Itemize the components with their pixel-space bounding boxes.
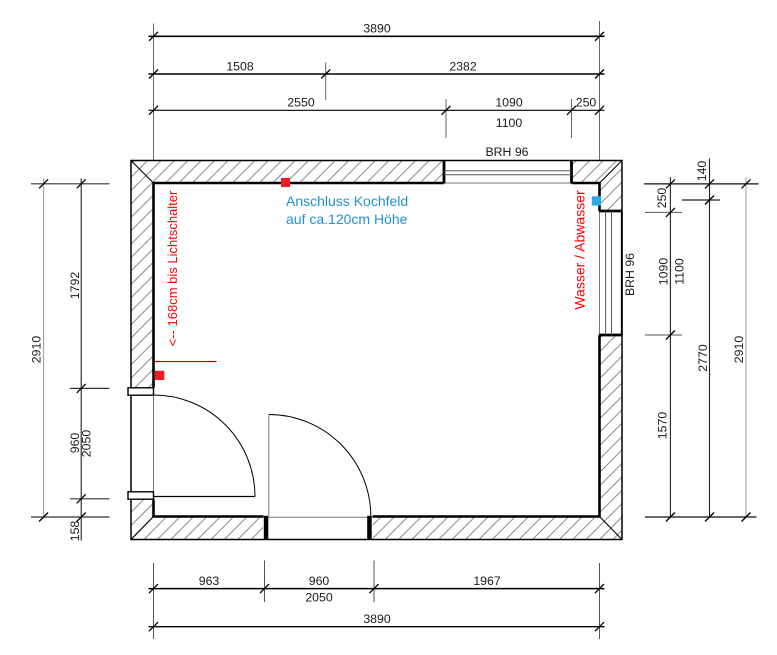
svg-text:Anschluss Kochfeld: Anschluss Kochfeld [286, 193, 408, 209]
svg-text:2910: 2910 [30, 336, 44, 364]
svg-text:1792: 1792 [68, 272, 82, 300]
svg-text:<-- 168cm bis Lichtschalter: <-- 168cm bis Lichtschalter [165, 190, 180, 346]
svg-text:2050: 2050 [80, 430, 94, 458]
svg-text:BRH 96: BRH 96 [485, 145, 528, 159]
svg-text:140: 140 [695, 161, 709, 182]
svg-text:1570: 1570 [656, 412, 670, 440]
svg-text:3890: 3890 [363, 22, 391, 36]
svg-text:BRH 96: BRH 96 [623, 253, 637, 296]
svg-text:250: 250 [576, 96, 597, 110]
svg-text:158: 158 [68, 521, 82, 542]
svg-text:2550: 2550 [287, 96, 315, 110]
svg-text:1090: 1090 [495, 96, 523, 110]
svg-text:2382: 2382 [449, 59, 477, 73]
svg-text:963: 963 [199, 574, 220, 588]
svg-text:1967: 1967 [473, 574, 501, 588]
svg-text:3890: 3890 [363, 612, 391, 626]
svg-text:1090: 1090 [657, 258, 671, 286]
svg-text:2910: 2910 [732, 336, 746, 364]
svg-text:1508: 1508 [226, 59, 254, 73]
svg-text:Wasser / Abwasser: Wasser / Abwasser [572, 190, 588, 310]
svg-text:1100: 1100 [673, 258, 687, 285]
svg-text:250: 250 [655, 188, 669, 209]
svg-text:1100: 1100 [496, 116, 523, 130]
svg-text:2050: 2050 [305, 591, 333, 605]
svg-text:auf ca.120cm Höhe: auf ca.120cm Höhe [286, 211, 408, 227]
svg-text:2770: 2770 [696, 344, 710, 372]
svg-text:960: 960 [309, 574, 330, 588]
